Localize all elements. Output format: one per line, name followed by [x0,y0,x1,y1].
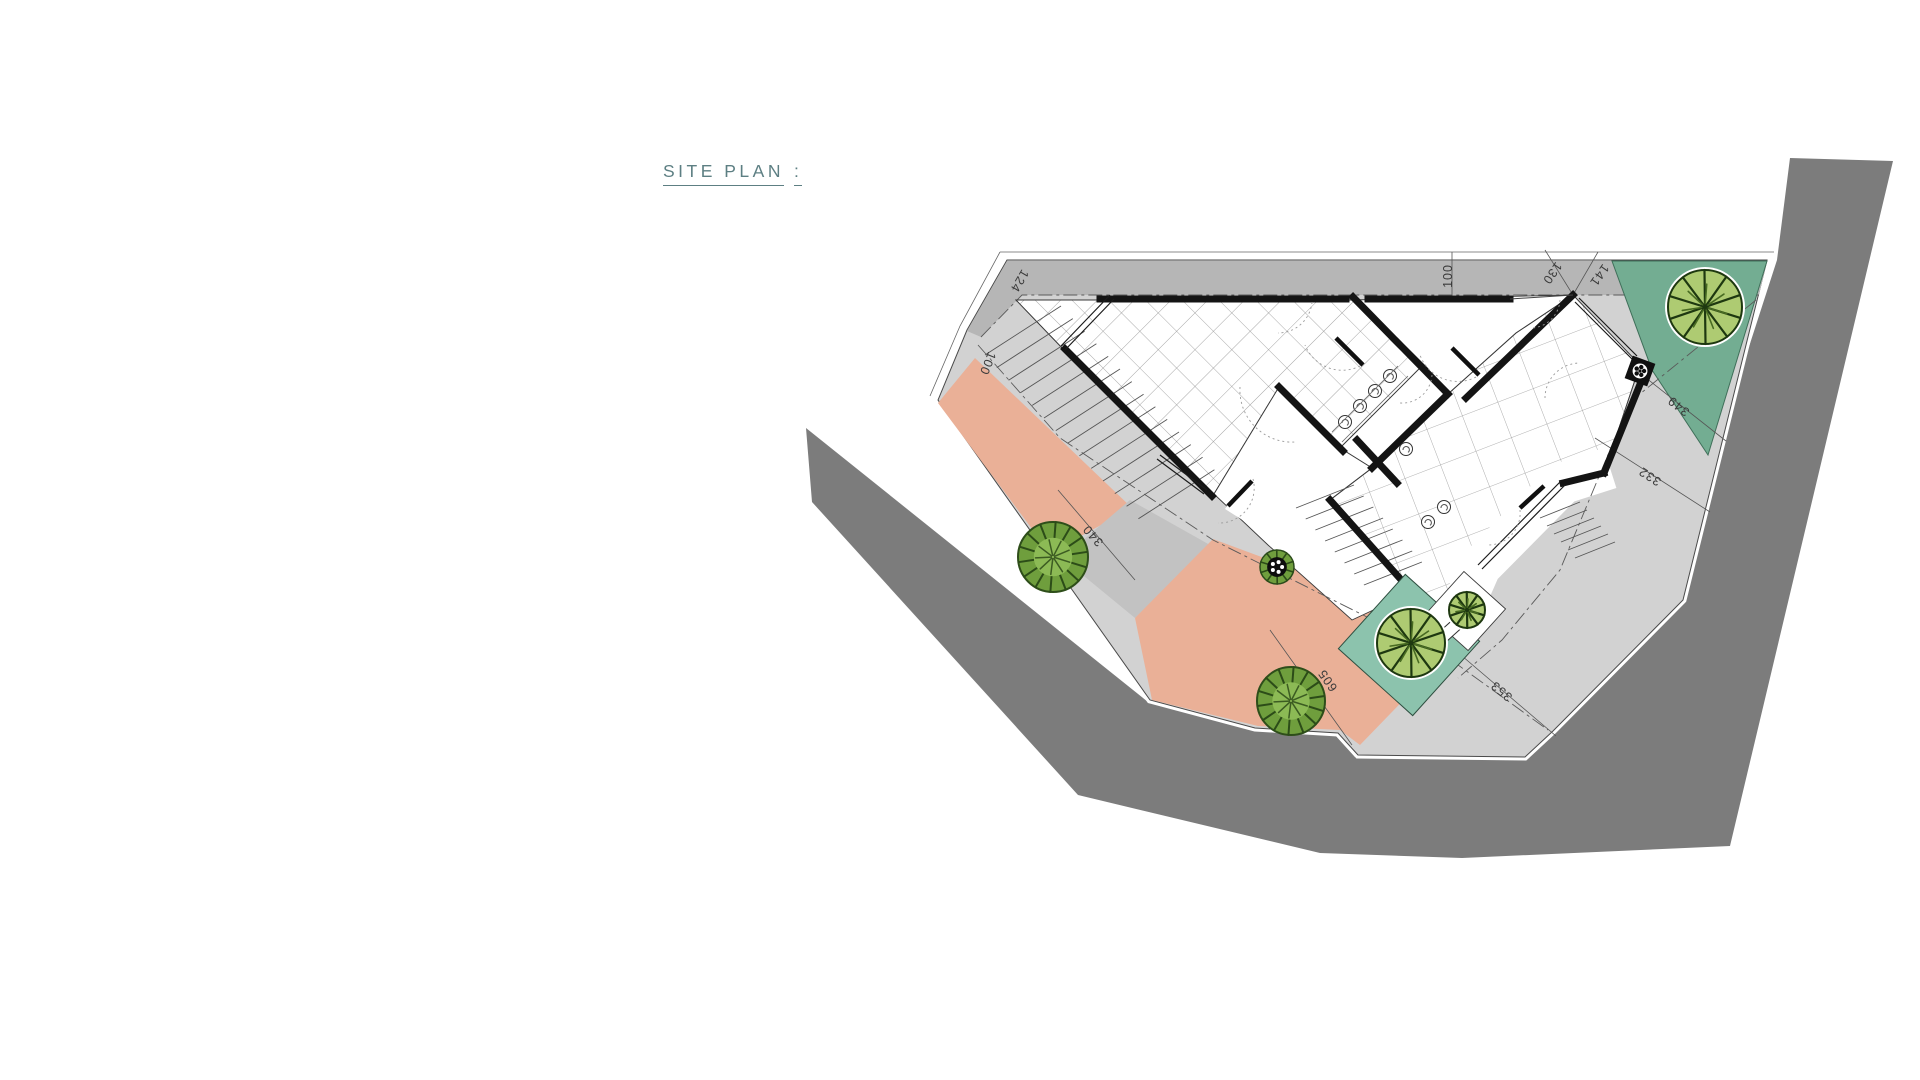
tree-bushy-icon [1018,522,1088,592]
tree-bushy-icon [1257,667,1325,735]
toilet-fixture-icon [1354,400,1367,413]
toilet-fixture-icon [1369,385,1382,398]
toilet-fixture-icon [1400,443,1413,456]
tree-canopy-icon [1665,267,1745,347]
toilet-fixture-icon [1438,501,1451,514]
tree-canopy-icon [1374,606,1448,680]
tree-canopy-icon [1446,589,1488,631]
toilet-fixture-icon [1384,370,1397,383]
site-plan-page: SITE PLAN : [0,0,1920,1080]
dimension-label: 100 [1441,264,1455,288]
site-plan-drawing: 124100100130141349332340605353 [0,0,1920,1080]
toilet-fixture-icon [1422,516,1435,529]
toilet-fixture-icon [1339,416,1352,429]
tree-ring-icon [1260,550,1294,584]
